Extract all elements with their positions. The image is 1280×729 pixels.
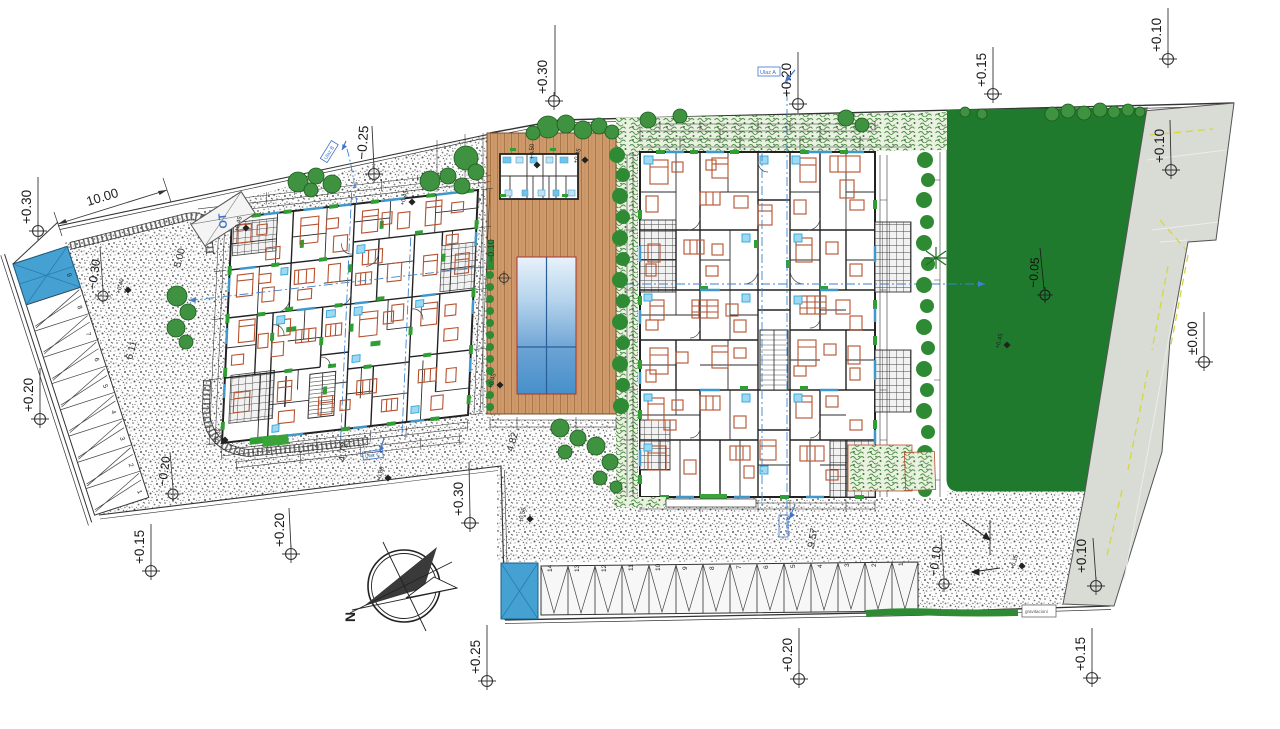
svg-text:Ulaz A: Ulaz A — [760, 70, 776, 76]
svg-text:7: 7 — [736, 565, 743, 569]
svg-text:+0.15: +0.15 — [974, 53, 989, 87]
svg-text:+0.15: +0.15 — [132, 530, 147, 564]
svg-text:+0.30: +0.30 — [451, 482, 466, 516]
svg-text:+0.10: +0.10 — [1152, 129, 1167, 163]
svg-text:5: 5 — [790, 564, 797, 568]
svg-text:1: 1 — [898, 562, 905, 566]
svg-text:N: N — [342, 612, 358, 622]
svg-text:+0.20: +0.20 — [21, 378, 36, 412]
svg-text:6: 6 — [763, 565, 770, 569]
svg-text:14: 14 — [547, 564, 554, 572]
svg-text:8: 8 — [709, 566, 716, 570]
svg-text:−0.10: −0.10 — [486, 239, 496, 262]
svg-text:2: 2 — [871, 563, 878, 567]
svg-text:11: 11 — [628, 564, 635, 571]
svg-text:gravitacioni: gravitacioni — [1025, 609, 1048, 614]
svg-text:4: 4 — [817, 564, 824, 568]
svg-text:+0.10: +0.10 — [1074, 539, 1089, 573]
svg-text:+0.15: +0.15 — [1073, 637, 1088, 671]
svg-text:10: 10 — [655, 563, 662, 571]
svg-text:+0.30: +0.30 — [535, 60, 550, 94]
svg-text:+0.20: +0.20 — [272, 513, 287, 547]
svg-text:+0.30: +0.30 — [19, 190, 34, 224]
svg-text:3: 3 — [844, 563, 851, 567]
svg-text:OT: OT — [217, 213, 230, 230]
svg-text:13: 13 — [574, 564, 581, 572]
svg-text:+0.20: +0.20 — [780, 638, 795, 672]
svg-text:12: 12 — [601, 564, 608, 572]
svg-text:−0.05: −0.05 — [1026, 257, 1042, 289]
svg-text:9: 9 — [682, 566, 689, 570]
svg-text:+0.10: +0.10 — [1149, 18, 1164, 52]
svg-text:+0.50: +0.50 — [530, 143, 536, 159]
svg-text:−0.25: −0.25 — [354, 125, 371, 160]
svg-text:+0.25: +0.25 — [468, 640, 483, 674]
svg-text:±0.00: ±0.00 — [1185, 321, 1200, 355]
svg-text:Ulaz D: Ulaz D — [784, 518, 790, 535]
